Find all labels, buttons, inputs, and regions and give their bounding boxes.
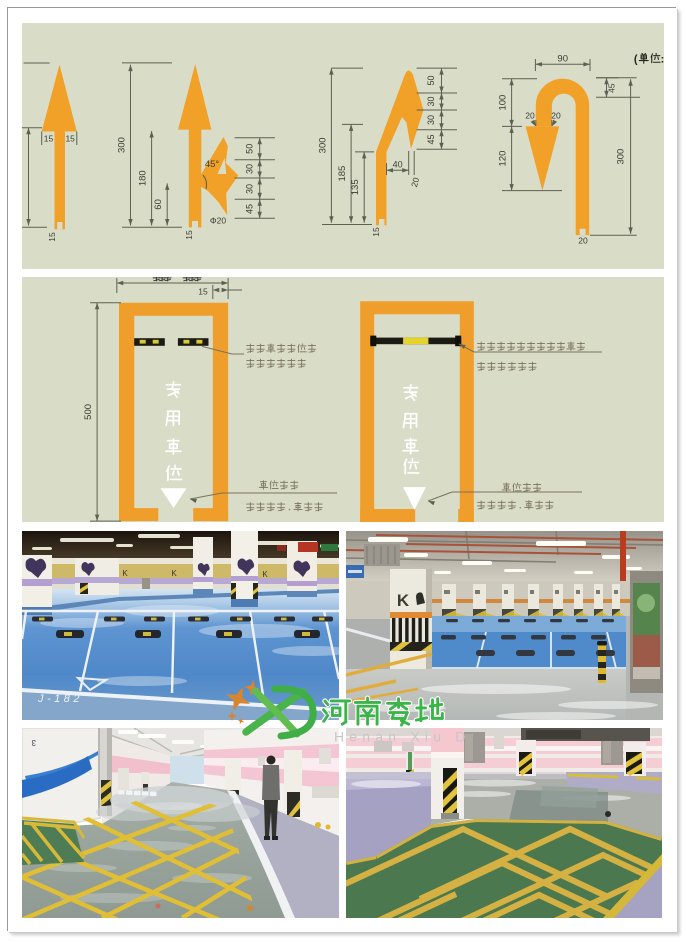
svg-text:K: K [397, 591, 410, 610]
svg-text:300: 300 [317, 137, 328, 153]
svg-text:45: 45 [607, 83, 617, 93]
svg-text:3: 3 [31, 738, 36, 747]
svg-text:300: 300 [616, 149, 627, 165]
svg-text:20: 20 [525, 111, 535, 121]
svg-text:45°: 45° [205, 159, 220, 170]
svg-text:185: 185 [337, 166, 348, 182]
svg-text:30: 30 [245, 184, 255, 194]
svg-text:300: 300 [117, 137, 128, 153]
svg-text:K: K [122, 569, 128, 578]
svg-text:500: 500 [83, 404, 94, 420]
svg-text:40: 40 [393, 159, 403, 169]
svg-text:30: 30 [426, 96, 436, 106]
svg-text:45: 45 [245, 204, 255, 214]
svg-text:90: 90 [557, 53, 568, 64]
svg-text:K: K [262, 570, 268, 579]
svg-text:J-182: J-182 [37, 693, 83, 705]
svg-text:15: 15 [198, 287, 208, 297]
svg-text:Henan Xiu Di: Henan Xiu Di [334, 729, 468, 745]
svg-text:15: 15 [44, 134, 54, 144]
svg-text:20: 20 [578, 236, 588, 246]
svg-text:135: 135 [350, 179, 361, 195]
svg-text:60: 60 [153, 199, 164, 210]
svg-text:20: 20 [551, 111, 561, 121]
svg-text:15: 15 [371, 227, 381, 237]
svg-text:30: 30 [426, 115, 436, 125]
svg-text:45: 45 [426, 134, 436, 144]
svg-text:15: 15 [65, 134, 75, 144]
svg-text:15: 15 [47, 232, 57, 242]
svg-text::: : [661, 54, 664, 66]
svg-text:15: 15 [184, 230, 194, 240]
svg-text:50: 50 [245, 144, 255, 154]
svg-text:100: 100 [498, 95, 509, 111]
svg-text:K: K [171, 569, 177, 578]
svg-text:120: 120 [498, 151, 509, 167]
svg-text:30: 30 [245, 164, 255, 174]
svg-text:50: 50 [426, 75, 436, 85]
svg-text:Φ20: Φ20 [210, 216, 227, 226]
svg-text:(: ( [634, 54, 638, 66]
svg-text:180: 180 [138, 170, 149, 186]
